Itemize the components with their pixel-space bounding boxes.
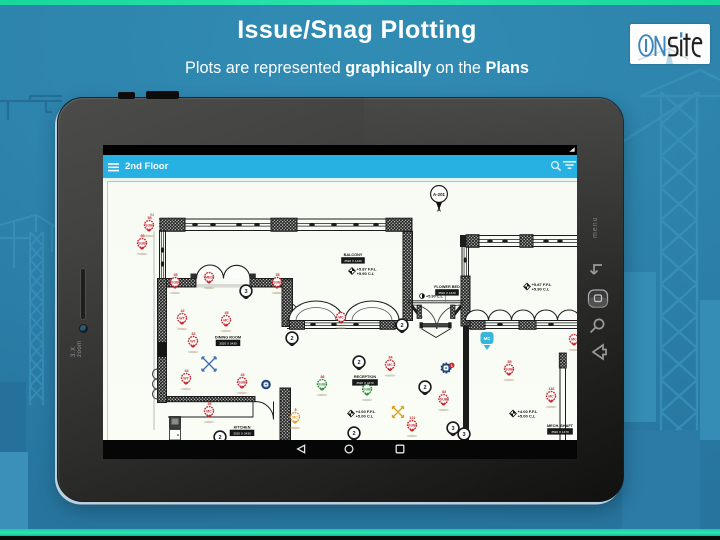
svg-text:+5.90 C.L: +5.90 C.L	[357, 271, 375, 276]
svg-text:84: 84	[388, 355, 393, 359]
svg-text:3520 X 3430: 3520 X 3430	[233, 431, 251, 435]
svg-text:SUB: SUB	[505, 367, 513, 371]
svg-text:+5.90 C.L: +5.90 C.L	[426, 295, 443, 299]
svg-text:2: 2	[352, 431, 355, 437]
svg-text:SUB: SUB	[171, 280, 179, 284]
svg-text:FLOWER BED: FLOWER BED	[434, 285, 460, 289]
svg-text:+5.00 C.L: +5.00 C.L	[518, 414, 536, 419]
svg-text:36: 36	[207, 402, 211, 406]
svg-text:3520 X 1430: 3520 X 1430	[344, 259, 362, 263]
svg-text:MECH. SHAFT: MECH. SHAFT	[547, 424, 574, 428]
svg-text:RECEPTION: RECEPTION	[354, 375, 376, 379]
svg-text:35: 35	[275, 273, 279, 277]
svg-text:2: 2	[357, 360, 360, 366]
svg-text:2: 2	[423, 385, 426, 391]
svg-text:+5.90 C.L: +5.90 C.L	[532, 287, 550, 292]
svg-text:MC: MC	[292, 415, 298, 419]
svg-text:KITCHEN: KITCHEN	[234, 426, 251, 430]
svg-text:BALCONY: BALCONY	[344, 253, 363, 257]
svg-text:3520 X 3430: 3520 X 3430	[219, 341, 237, 345]
svg-text:42: 42	[180, 309, 184, 313]
svg-text:86: 86	[320, 375, 324, 379]
svg-text:9: 9	[294, 408, 296, 412]
svg-text:WT: WT	[190, 339, 196, 343]
svg-text:A: A	[437, 208, 441, 214]
svg-text:2: 2	[400, 323, 403, 329]
svg-text:89: 89	[140, 234, 144, 238]
svg-text:3520 X 1470: 3520 X 1470	[551, 430, 569, 434]
svg-text:MED: MED	[205, 275, 213, 279]
svg-text:85: 85	[507, 360, 511, 364]
svg-text:SUB: SUB	[238, 380, 246, 384]
svg-text:SUB: SUB	[318, 382, 326, 386]
svg-text:3: 3	[462, 432, 465, 438]
svg-text:DINING ROOM: DINING ROOM	[215, 336, 241, 340]
svg-text:45: 45	[224, 311, 228, 315]
svg-text:WT: WT	[179, 316, 185, 320]
svg-text:SUB: SUB	[363, 387, 371, 391]
svg-text:MC: MC	[571, 337, 577, 341]
svg-text:+5.00 C.L: +5.00 C.L	[356, 414, 374, 419]
svg-text:52: 52	[191, 332, 195, 336]
svg-text:58: 58	[147, 216, 151, 220]
svg-text:MC: MC	[338, 315, 344, 319]
svg-text:44: 44	[184, 369, 189, 373]
svg-text:MC: MC	[548, 394, 554, 398]
svg-text:35: 35	[173, 273, 177, 277]
svg-text:SUB: SUB	[145, 223, 153, 227]
svg-text:3: 3	[244, 289, 247, 295]
svg-text:3: 3	[451, 426, 454, 432]
svg-text:2: 2	[290, 336, 293, 342]
svg-text:116: 116	[549, 387, 555, 391]
svg-text:SUB: SUB	[440, 397, 448, 401]
svg-text:WT: WT	[183, 376, 189, 380]
svg-text:MC: MC	[387, 363, 393, 367]
svg-text:121: 121	[409, 416, 415, 420]
svg-text:A-201: A-201	[433, 192, 446, 197]
svg-text:MC: MC	[223, 318, 229, 322]
svg-text:MC: MC	[206, 409, 212, 413]
svg-text:SUB: SUB	[138, 241, 146, 245]
svg-text:MC: MC	[484, 336, 492, 341]
svg-text:SUB: SUB	[273, 280, 281, 284]
svg-text:SUB: SUB	[408, 423, 416, 427]
svg-text:43: 43	[240, 373, 244, 377]
svg-text:83: 83	[442, 390, 446, 394]
